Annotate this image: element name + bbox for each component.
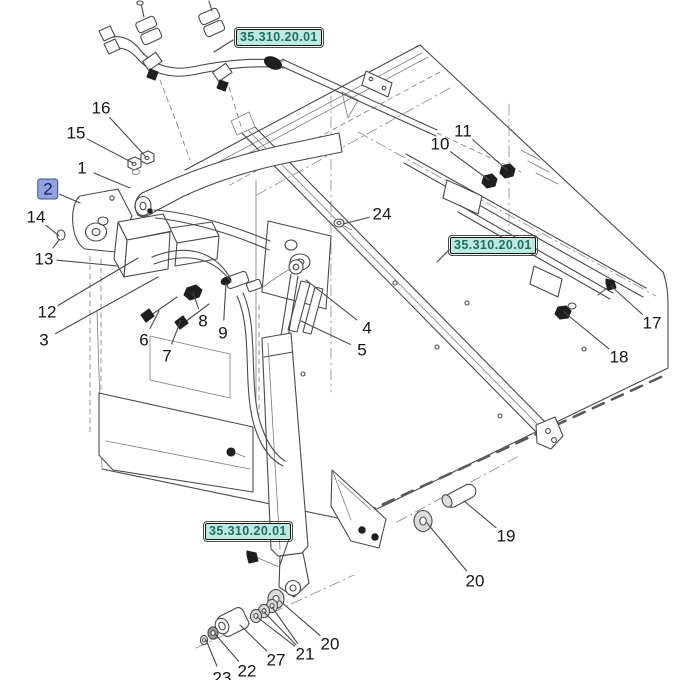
callout-5[interactable]: 5: [357, 342, 366, 359]
leader-line: [280, 601, 320, 636]
callout-13[interactable]: 13: [35, 251, 54, 268]
leader-line: [437, 250, 449, 262]
callout-3[interactable]: 3: [39, 332, 48, 349]
callout-22[interactable]: 22: [238, 663, 257, 680]
callout-4[interactable]: 4: [362, 320, 371, 337]
parts-diagram-page: 1615121413123678924451011171819202021272…: [0, 0, 688, 680]
callout-16[interactable]: 16: [92, 100, 111, 117]
callout-9[interactable]: 9: [218, 325, 227, 342]
leader-line: [214, 40, 233, 52]
pin-assembly: [397, 456, 519, 532]
leader-lines: [46, 40, 642, 666]
leader-line: [94, 173, 130, 188]
leader-line: [224, 283, 226, 320]
leader-line: [240, 625, 267, 651]
callout-2[interactable]: 2: [37, 179, 58, 200]
leader-line: [88, 139, 133, 163]
callout-10[interactable]: 10: [431, 136, 450, 153]
leader-line: [473, 140, 507, 170]
callout-1[interactable]: 1: [77, 160, 86, 177]
leader-line: [464, 501, 496, 528]
callout-6[interactable]: 6: [139, 332, 148, 349]
leader-line: [215, 634, 238, 661]
leader-line: [206, 640, 217, 666]
leader-line: [55, 277, 158, 334]
leader-line: [427, 523, 467, 571]
leader-line: [611, 286, 642, 314]
callout-24[interactable]: 24: [373, 206, 392, 223]
section-ref-label[interactable]: 35.310.20.01: [450, 237, 536, 254]
callout-14[interactable]: 14: [27, 209, 46, 226]
callout-23[interactable]: 23: [213, 670, 232, 680]
leader-line: [57, 260, 118, 266]
callout-8[interactable]: 8: [198, 313, 207, 330]
callout-27[interactable]: 27: [267, 652, 286, 669]
leader-line: [46, 225, 59, 236]
leader-line: [58, 258, 138, 305]
callout-12[interactable]: 12: [38, 304, 57, 321]
callout-17[interactable]: 17: [643, 315, 662, 332]
section-ref-label[interactable]: 35.310.20.01: [236, 29, 322, 46]
leader-line: [264, 612, 296, 645]
leader-line: [450, 152, 489, 180]
leader-line: [564, 312, 609, 349]
section-ref-label[interactable]: 35.310.20.01: [205, 523, 291, 540]
callout-20[interactable]: 20: [466, 573, 485, 590]
callout-15[interactable]: 15: [67, 125, 86, 142]
leader-line: [110, 118, 146, 157]
callout-21[interactable]: 21: [296, 646, 315, 663]
callout-18[interactable]: 18: [610, 349, 629, 366]
callout-19[interactable]: 19: [497, 528, 516, 545]
callout-20[interactable]: 20: [321, 636, 340, 653]
callout-11[interactable]: 11: [454, 123, 472, 140]
callout-7[interactable]: 7: [162, 348, 171, 365]
